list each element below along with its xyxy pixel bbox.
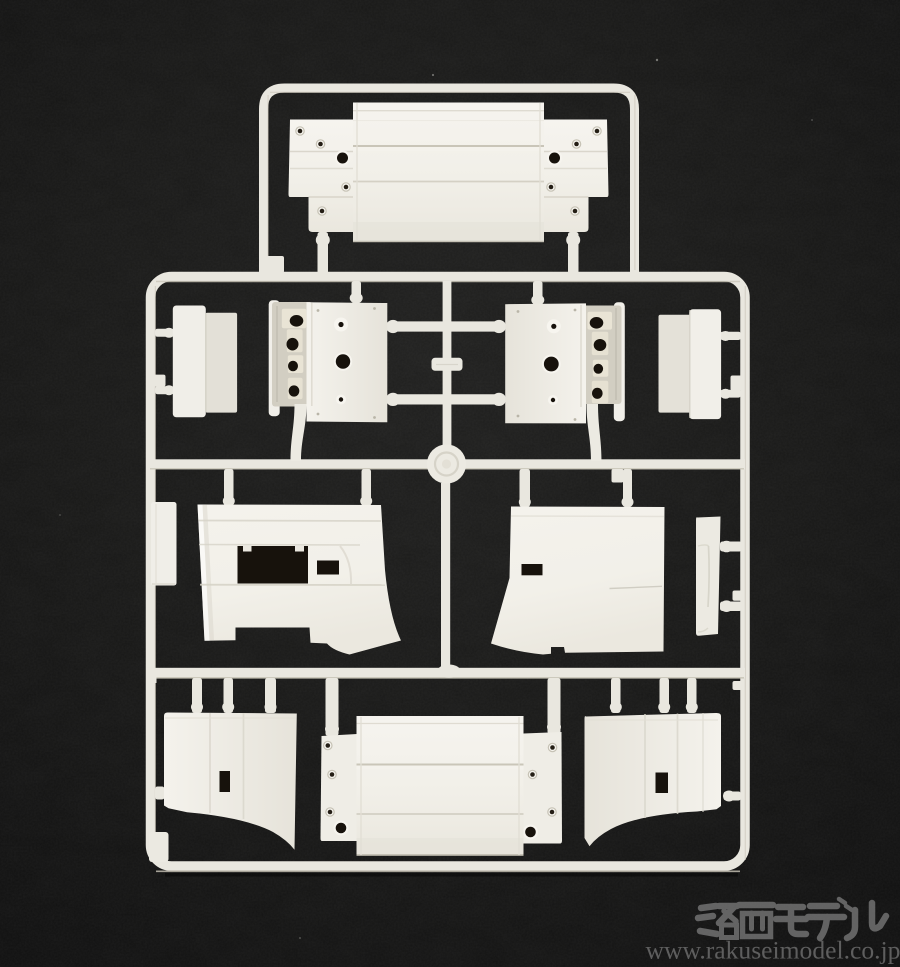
svg-text:www.rakuseimodel.co.jp: www.rakuseimodel.co.jp (646, 936, 900, 965)
